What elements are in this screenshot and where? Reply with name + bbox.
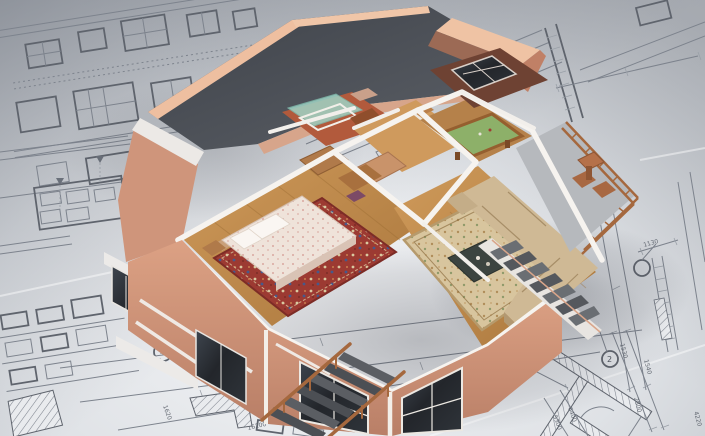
scene-canvas: 1130 2 2100 5300 6400 1530 1540 2800 422… (0, 0, 705, 436)
architectural-render-image: 1130 2 2100 5300 6400 1530 1540 2800 422… (0, 0, 705, 436)
